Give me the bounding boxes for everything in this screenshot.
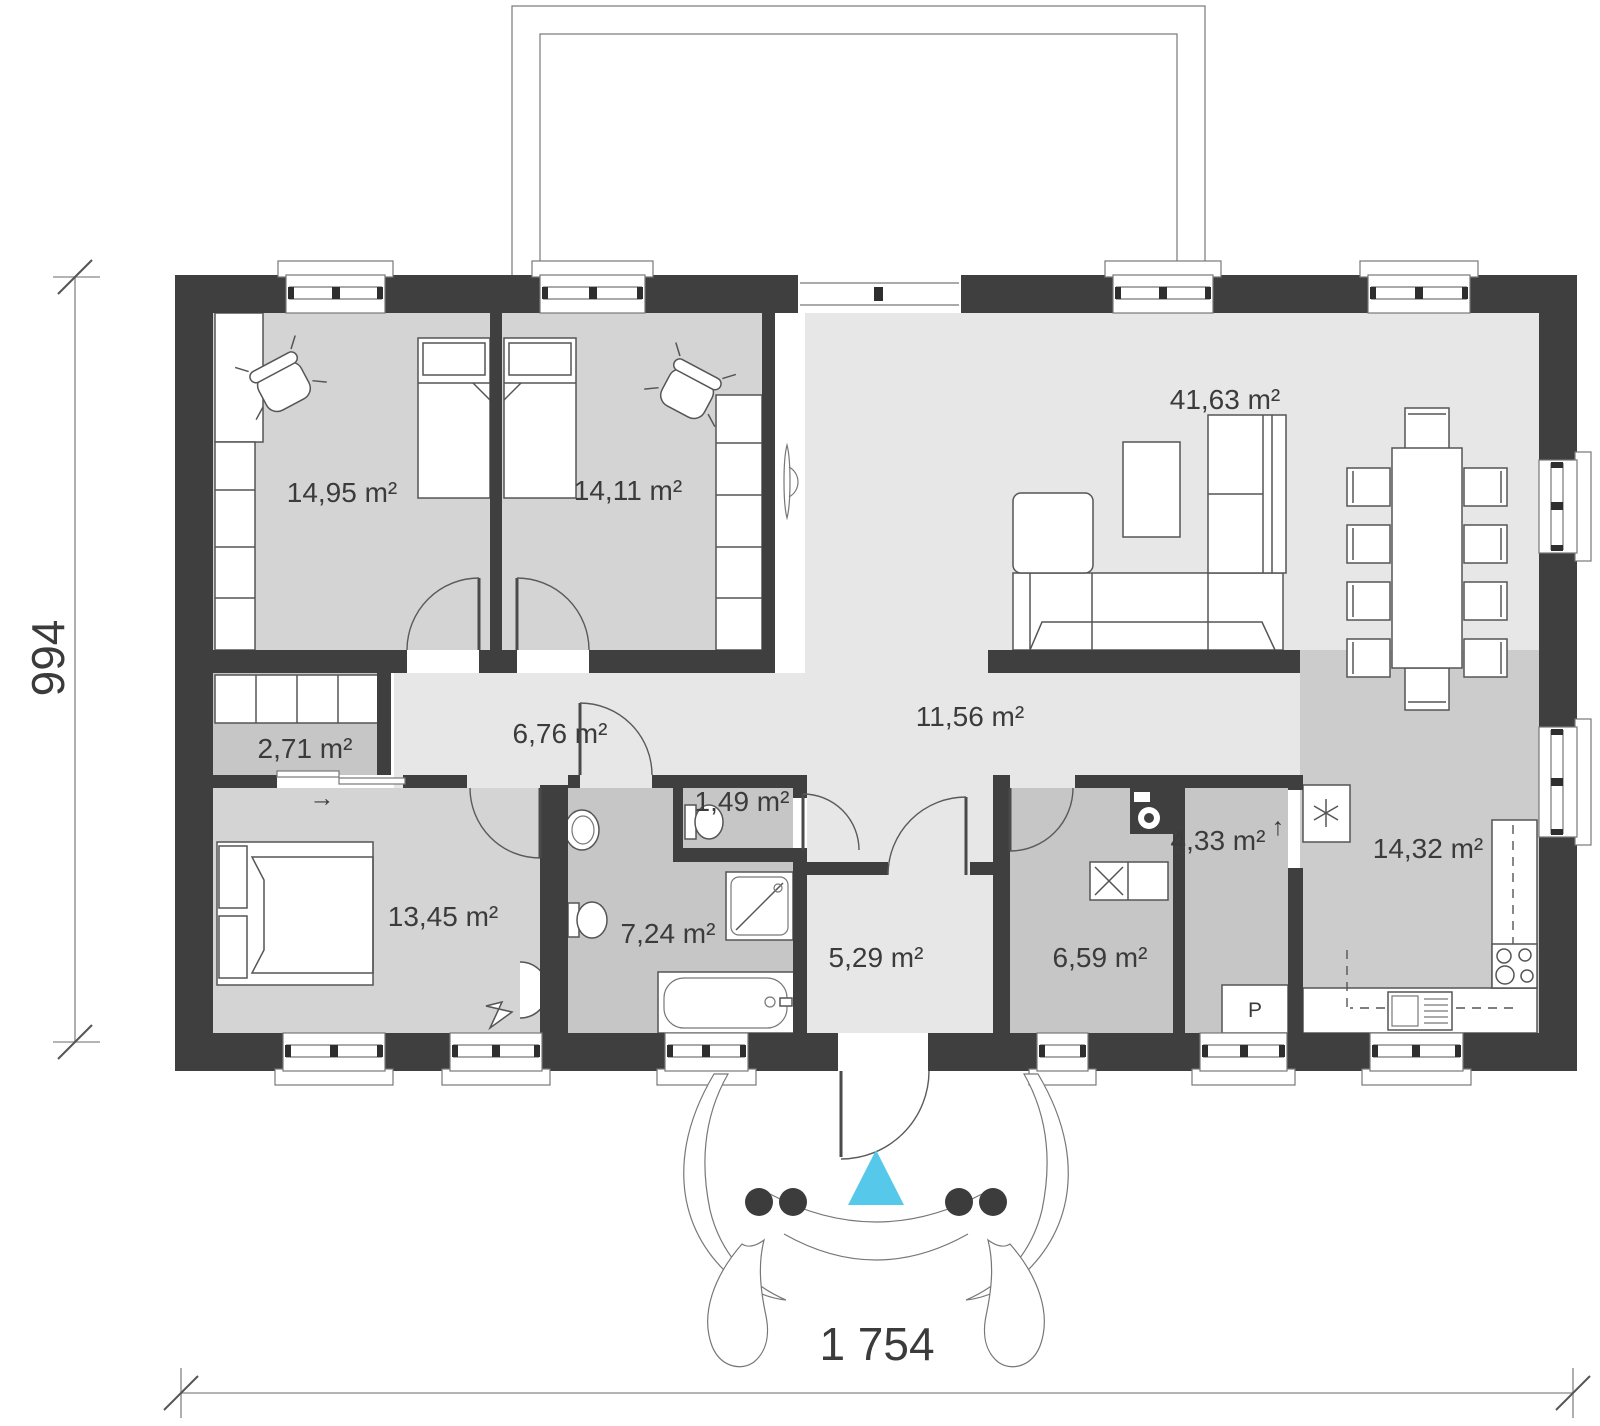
terrace-outline bbox=[512, 6, 1205, 277]
width-dimension-label: 1 754 bbox=[819, 1318, 934, 1370]
window bbox=[1360, 261, 1478, 313]
double-bed bbox=[217, 842, 373, 985]
toilet bbox=[568, 902, 607, 938]
sliding-door-living bbox=[775, 313, 805, 673]
window bbox=[532, 261, 653, 313]
dimension-width bbox=[164, 1368, 1590, 1418]
wardrobe-boxes bbox=[215, 675, 379, 723]
wall-left bbox=[175, 275, 213, 1071]
window bbox=[1539, 452, 1591, 561]
room-area-label: 14,32 m² bbox=[1373, 833, 1484, 864]
stove-icon bbox=[1492, 944, 1537, 988]
room-area-label: 41,63 m² bbox=[1170, 384, 1281, 415]
window bbox=[1362, 1033, 1471, 1085]
bathtub bbox=[658, 972, 795, 1033]
room-area-label: 14,11 m² bbox=[574, 475, 682, 506]
floor-living-passage bbox=[775, 650, 988, 673]
closet bbox=[716, 395, 762, 650]
pantry-cabinet-label: P bbox=[1248, 999, 1262, 1022]
room-area-label: 5,29 m² bbox=[829, 942, 924, 973]
room-area-label: 7,24 m² bbox=[621, 918, 716, 949]
window bbox=[657, 1033, 756, 1085]
washing-machine-icon bbox=[1130, 788, 1173, 834]
window bbox=[1105, 261, 1221, 313]
room-area-label: 6,76 m² bbox=[513, 718, 608, 749]
floor-plan-canvas: 14,95 m² 14,11 m² 41,63 m² 2,71 m² 6,76 … bbox=[0, 0, 1600, 1426]
window bbox=[275, 1033, 393, 1085]
room-area-label: 14,95 m² bbox=[287, 477, 398, 508]
window bbox=[1192, 1033, 1295, 1085]
kitchen-sink bbox=[1388, 992, 1452, 1030]
single-bed bbox=[418, 338, 490, 498]
depth-dimension-label: 994 bbox=[22, 620, 74, 697]
single-bed bbox=[504, 338, 576, 498]
fridge-icon bbox=[1303, 785, 1350, 842]
entry-door-opening bbox=[838, 1033, 928, 1071]
bathroom-sink bbox=[565, 810, 599, 850]
wall-right bbox=[1539, 275, 1577, 1071]
shower bbox=[726, 872, 793, 940]
room-area-label: 13,45 m² bbox=[388, 901, 499, 932]
coffee-table bbox=[1123, 442, 1180, 537]
floor-plan-drawing: 14,95 m² 14,11 m² 41,63 m² 2,71 m² 6,76 … bbox=[0, 0, 1600, 1426]
window bbox=[442, 1033, 550, 1085]
room-area-label: 11,56 m² bbox=[916, 701, 1024, 732]
room-area-label: 4,33 m² bbox=[1171, 825, 1266, 856]
room-area-label: 6,59 m² bbox=[1053, 942, 1148, 973]
terrace-sliding-door bbox=[798, 275, 961, 313]
pantry-direction-arrow-icon: ↑ bbox=[1272, 813, 1285, 841]
room-area-label: 2,71 m² bbox=[258, 733, 353, 764]
utility-counter bbox=[1090, 862, 1168, 900]
window bbox=[278, 261, 393, 313]
slide-direction-arrow-icon: → bbox=[310, 784, 335, 812]
front-door bbox=[841, 1071, 929, 1159]
room-area-label: 1,49 m² bbox=[695, 786, 790, 817]
window bbox=[1539, 719, 1591, 845]
